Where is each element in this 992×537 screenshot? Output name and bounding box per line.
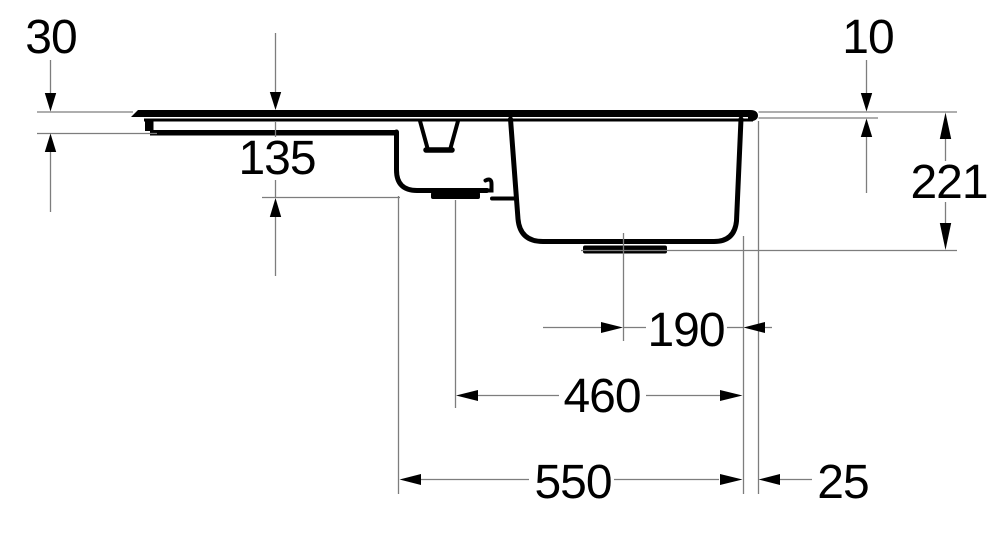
dim-221-arrow-up-icon	[940, 113, 951, 140]
small-bowl-outline	[397, 132, 488, 191]
rim-top-line	[131, 110, 757, 117]
rim-right-end-cap	[748, 110, 758, 122]
dim-460-arrow-left-icon	[456, 390, 478, 401]
sink-profile	[131, 110, 758, 254]
dim-135-arrow-down-icon	[270, 92, 281, 110]
dim-190-label: 190	[647, 304, 724, 357]
rim-underside-line	[144, 119, 753, 122]
extension-lines	[37, 112, 957, 494]
dim-460-arrow-right-icon	[720, 390, 743, 401]
dim-10-label: 10	[842, 11, 893, 64]
dimension-135: 135	[238, 33, 315, 276]
dim-221-arrow-down-icon	[940, 223, 951, 250]
dim-550-arrow-left-icon	[400, 474, 422, 485]
dim-25-arrow-left-icon	[759, 474, 781, 485]
drawing-canvas: 30 10 135 221	[0, 0, 992, 537]
dim-135-label: 135	[238, 132, 315, 185]
main-bowl-drain-flange	[583, 246, 667, 254]
sink-dimension-diagram: 30 10 135 221	[0, 0, 992, 537]
overflow-right-slant	[450, 121, 458, 150]
dim-135-arrow-up-icon	[270, 198, 281, 217]
dimension-460: 460	[456, 370, 743, 423]
dim-30-arrow-up-icon	[45, 134, 56, 153]
dim-190-arrow-left-icon	[744, 322, 766, 333]
dimension-550: 550	[400, 456, 743, 509]
overflow-left-slant	[420, 121, 428, 150]
dim-25-label: 25	[817, 456, 868, 509]
dim-550-arrow-right-icon	[720, 474, 743, 485]
dim-460-label: 460	[563, 370, 640, 423]
small-bowl-drain-flange	[431, 192, 480, 199]
dim-30-arrow-down-icon	[45, 93, 56, 112]
dim-30-label: 30	[25, 11, 76, 64]
left-front-lip-step	[145, 119, 154, 132]
dimension-221: 221	[910, 113, 987, 251]
dimension-190: 190	[543, 304, 772, 357]
divider-weir-hook	[486, 180, 492, 191]
dim-10-arrow-down-icon	[861, 93, 872, 112]
dim-221-label: 221	[910, 156, 987, 209]
dim-550-label: 550	[534, 456, 611, 509]
dimension-25: 25	[759, 456, 869, 509]
dim-10-arrow-up-icon	[861, 119, 872, 138]
dim-190-arrow-right-icon	[601, 322, 623, 333]
dimension-10: 10	[842, 11, 893, 193]
main-bowl-outline	[511, 119, 742, 242]
